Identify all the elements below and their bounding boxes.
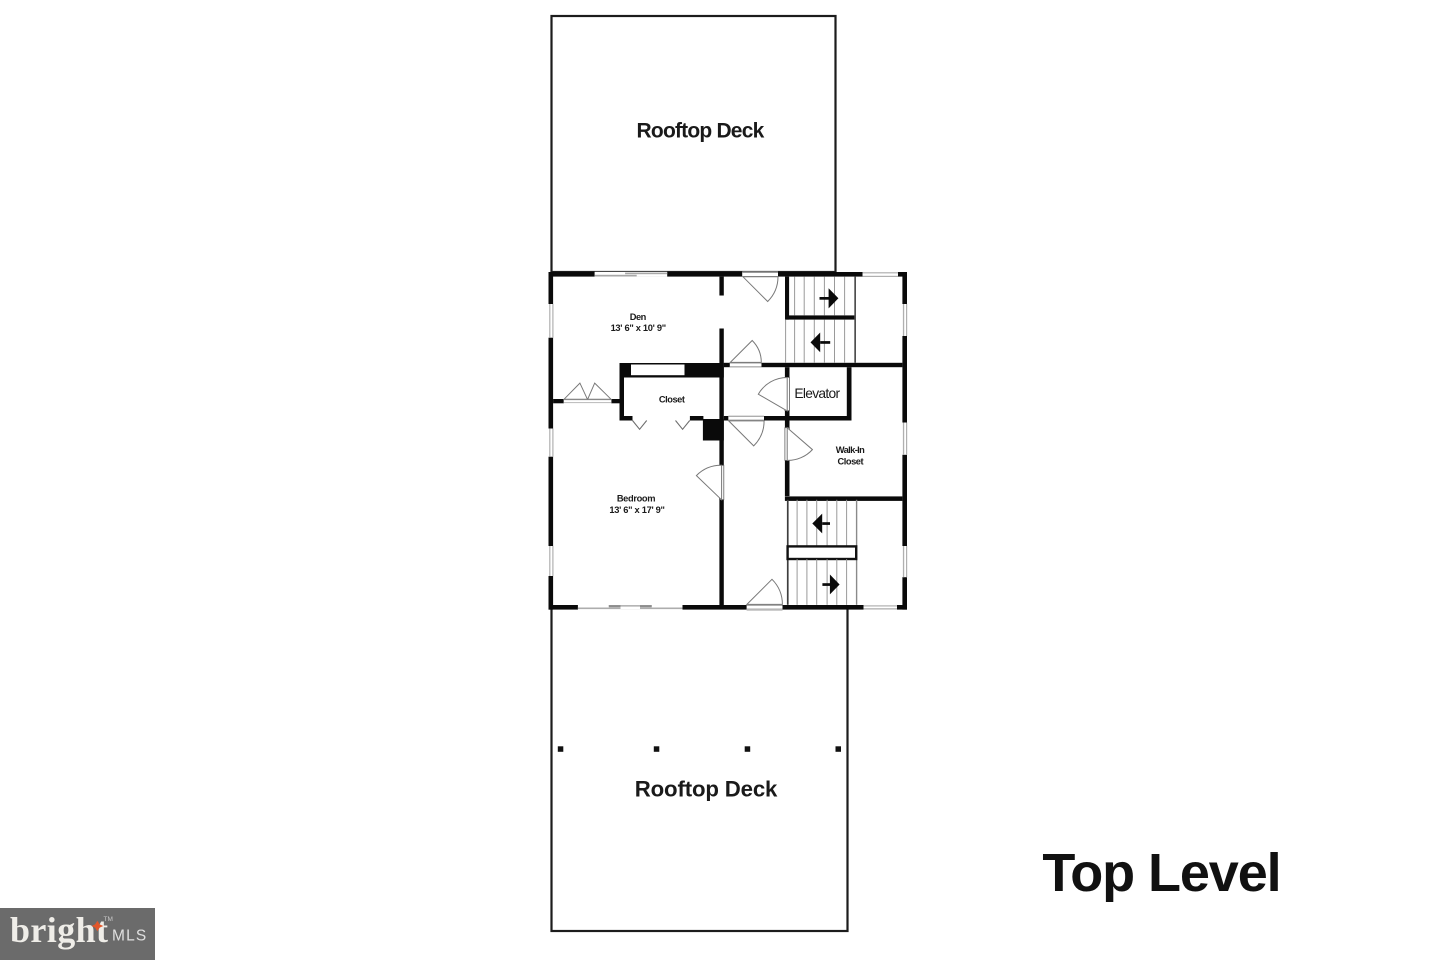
svg-text:13' 6" x 10' 9": 13' 6" x 10' 9" [611,323,666,333]
svg-text:Walk-In: Walk-In [836,445,865,455]
svg-text:TM: TM [104,916,113,923]
svg-text:Rooftop Deck: Rooftop Deck [637,120,765,143]
svg-text:Bedroom: Bedroom [617,494,655,504]
svg-text:bright: bright [10,910,108,950]
svg-text:Closet: Closet [659,395,685,405]
svg-text:13' 6" x 17' 9": 13' 6" x 17' 9" [609,505,664,515]
svg-text:Top Level: Top Level [1042,843,1280,903]
svg-text:Rooftop Deck: Rooftop Deck [635,776,778,801]
svg-text:Elevator: Elevator [794,386,840,401]
svg-text:Closet: Closet [837,457,863,467]
svg-text:Den: Den [630,312,647,322]
svg-text:MLS: MLS [112,928,147,945]
